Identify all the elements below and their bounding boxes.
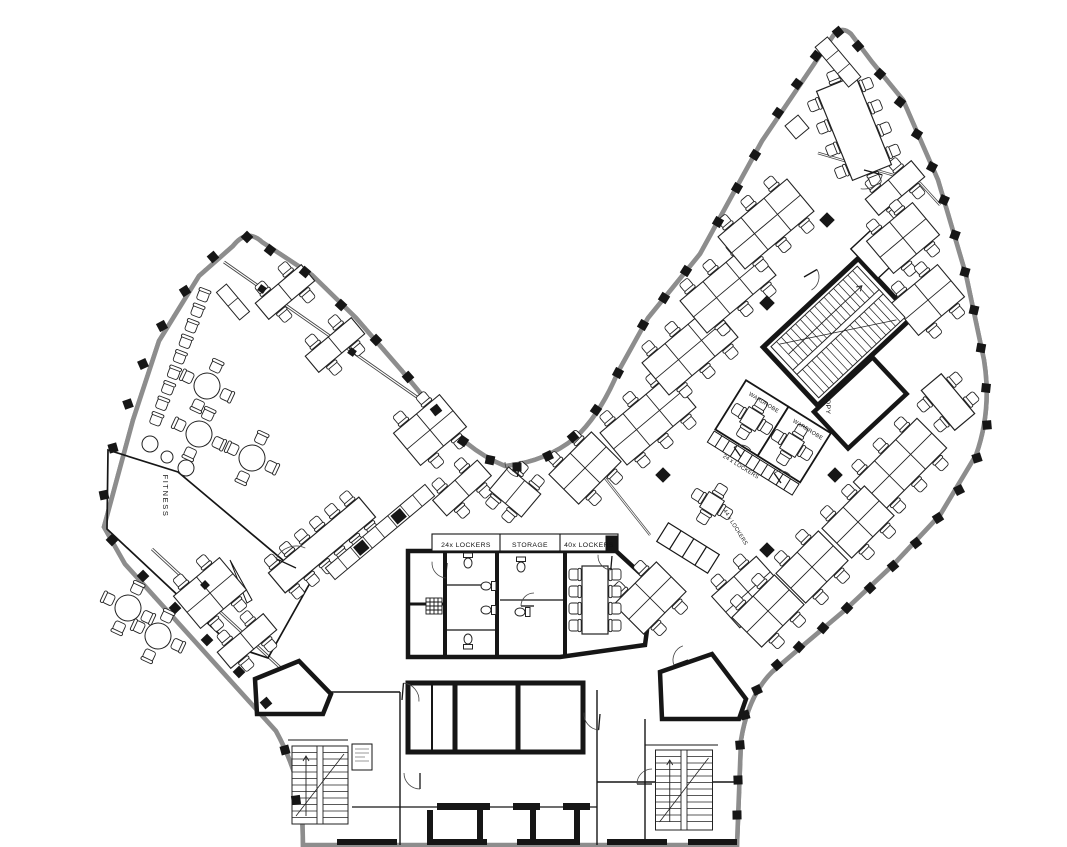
facade-column [733,775,742,784]
toilet [464,634,473,649]
facade-column [735,740,745,750]
copy-room-label: COPY [824,394,831,415]
facade-column [981,383,991,393]
chair [569,619,581,631]
staircase [292,746,348,824]
chair [110,620,126,636]
toilet [517,557,526,572]
chair [609,585,621,597]
lounge-chair [161,451,173,463]
facade-column [122,398,134,410]
core-24-lockers-label: 24x LOCKERS [441,542,491,549]
facade-column [485,455,496,466]
chair [569,568,581,580]
elevator-block [408,683,583,752]
toilet [515,608,530,617]
facade-column [107,442,118,453]
toilet [481,582,496,591]
facade-column [137,358,149,370]
facade-column [99,490,110,501]
toilet [481,606,496,615]
toilet [464,553,473,568]
facade-column [732,810,741,819]
core-storage-label: STORAGE [512,542,548,549]
chair [569,602,581,614]
chair [100,590,116,606]
core-technical-grid [426,598,442,614]
stair-left-sign [352,744,372,770]
floor-plan-page: FITNESS 24x LOCKERS STORAGE 40x LOCKERS … [0,0,1067,847]
fitness-room-label: FITNESS [161,475,170,518]
facade-column [982,420,992,430]
lounge-chair [178,460,194,476]
lounge-chair [142,436,158,452]
chair [140,648,156,664]
staircase [656,750,713,830]
facade-column [976,343,986,353]
chair [569,585,581,597]
chair [609,619,621,631]
chair [170,637,186,653]
facade-column [291,795,301,805]
office-floor-plan-drawing: FITNESS 24x LOCKERS STORAGE 40x LOCKERS … [0,0,1067,847]
chair [609,602,621,614]
core-40-lockers-label: 40x LOCKERS [564,542,614,549]
